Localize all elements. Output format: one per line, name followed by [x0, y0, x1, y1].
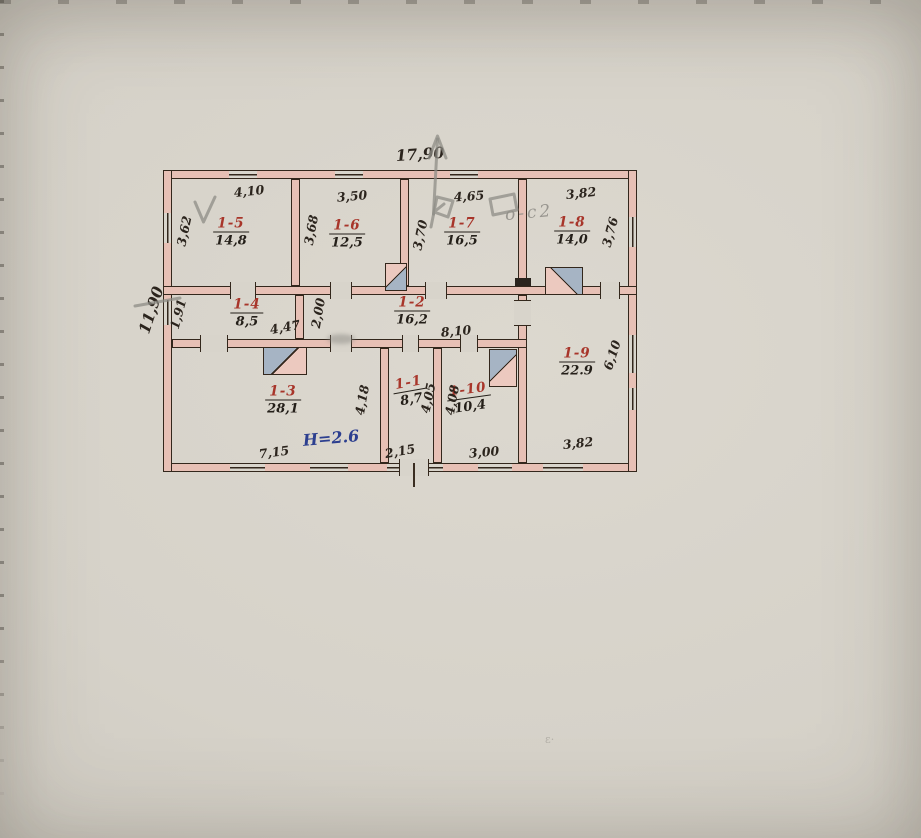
window-symbol — [230, 463, 265, 472]
window-symbol — [310, 463, 348, 472]
pencil-smudge — [327, 334, 355, 344]
room-area: 22.9 — [559, 362, 595, 379]
room-id: 1-8 — [554, 215, 590, 231]
window-symbol — [387, 463, 399, 472]
stove-symbol — [489, 349, 517, 387]
door-opening — [200, 335, 228, 352]
dim-room-1-7-w: 4,65 — [453, 187, 484, 204]
door-opening — [402, 335, 419, 352]
room-id: 1-6 — [329, 218, 365, 234]
dim-room-1-2-w: 8,10 — [440, 322, 472, 340]
room-id: 1-4 — [230, 297, 263, 313]
room-area: 8,5 — [230, 313, 263, 330]
room-label-1-9: 1-9 22.9 — [559, 346, 595, 379]
window-symbol — [478, 463, 512, 472]
dim-room-1-5-h: 3,62 — [173, 215, 194, 248]
wall-outer-right — [628, 170, 637, 472]
door-opening — [600, 282, 620, 299]
dim-room-1-9-h: 6,10 — [600, 338, 624, 372]
door-opening — [514, 300, 531, 326]
sheet-edge-marks-top — [0, 0, 921, 4]
room-id: 1-7 — [444, 216, 480, 232]
dim-room-1-6-w: 3,50 — [336, 187, 368, 205]
dim-room-1-7-h: 3,70 — [409, 219, 430, 252]
stray-mark: ε· — [545, 733, 554, 746]
scanned-sheet: 17,90 11,90 1-5 14,8 1-6 12,5 1-7 16,5 1… — [0, 0, 921, 838]
room-area: 28,1 — [265, 400, 301, 417]
room-label-1-5: 1-5 14,8 — [213, 216, 249, 249]
stove-symbol — [385, 263, 407, 291]
room-area: 14,0 — [554, 231, 590, 248]
dim-room-1-3-h: 4,18 — [352, 384, 372, 417]
pencil-note-text: о-с2 — [504, 201, 554, 225]
room-area: 16,2 — [394, 311, 430, 328]
door-opening — [330, 282, 352, 299]
window-symbol — [335, 170, 363, 179]
room-label-1-7: 1-7 16,5 — [444, 216, 480, 249]
room-id: 1-5 — [213, 216, 249, 232]
dim-room-1-10-w: 3,00 — [468, 443, 500, 461]
window-symbol — [628, 388, 637, 410]
dim-overall-width: 17,90 — [395, 143, 445, 165]
wall-1-7-1-8 — [518, 179, 527, 286]
window-symbol — [543, 463, 583, 472]
window-symbol — [163, 213, 172, 243]
window-symbol — [628, 335, 637, 373]
wall-1-5-1-6 — [291, 179, 300, 286]
sheet-edge-marks-left — [0, 0, 4, 838]
dim-room-1-5-w: 4,10 — [233, 182, 265, 200]
dim-room-1-6-h: 3,68 — [301, 214, 321, 247]
dim-room-1-2-h: 2,00 — [308, 297, 328, 330]
stove-symbol — [545, 267, 583, 295]
room-label-1-6: 1-6 12,5 — [329, 218, 365, 251]
dim-room-1-8-h: 3,76 — [599, 215, 621, 248]
room-area: 14,8 — [213, 232, 249, 249]
window-symbol — [628, 217, 637, 247]
room-id: 1-9 — [559, 346, 595, 362]
window-symbol — [450, 170, 478, 179]
window-symbol — [229, 170, 257, 179]
window-symbol — [429, 463, 443, 472]
dim-room-1-3-w: 7,15 — [258, 443, 290, 462]
flue-symbol — [515, 278, 531, 286]
entrance-step-line — [413, 463, 415, 487]
room-id: 1-2 — [394, 295, 430, 311]
wall-1-1-1-10 — [433, 348, 442, 463]
room-area: 12,5 — [329, 234, 365, 251]
room-label-1-3: 1-3 28,1 — [265, 384, 301, 417]
room-area: 16,5 — [444, 232, 480, 249]
dim-room-1-8-w: 3,82 — [565, 184, 597, 202]
room-id: 1-3 — [265, 384, 301, 400]
ceiling-height-note: Н=2.6 — [302, 426, 360, 450]
dim-room-1-9-w: 3,82 — [562, 434, 594, 452]
room-label-1-8: 1-8 14,0 — [554, 215, 590, 248]
stove-symbol — [263, 347, 307, 375]
floor-plan: 17,90 11,90 1-5 14,8 1-6 12,5 1-7 16,5 1… — [163, 170, 637, 472]
room-label-1-2: 1-2 16,2 — [394, 295, 430, 328]
room-label-1-4: 1-4 8,5 — [230, 297, 263, 330]
